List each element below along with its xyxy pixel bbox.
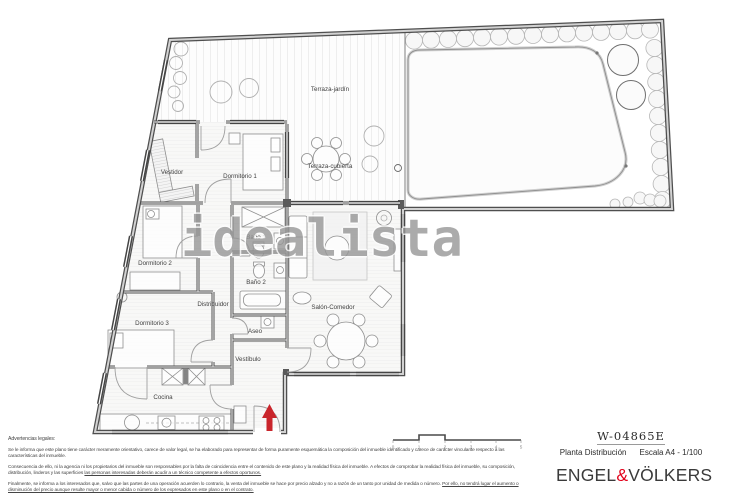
legal-paragraph-2: Consecuencia de ello, ni la agencia ni l… bbox=[8, 465, 524, 477]
label-dormitorio-1: Dormitorio 1 bbox=[223, 173, 257, 180]
hall-cabinet bbox=[234, 406, 246, 423]
label-salon-comedor: Salón-Comedor bbox=[311, 304, 354, 311]
label-vestidor: Vestidor bbox=[161, 169, 183, 176]
legal-heading: Advertencias legales: bbox=[8, 436, 524, 442]
label-aseo: Aseo bbox=[248, 328, 263, 335]
label-distribuidor: Distribuidor bbox=[197, 301, 228, 308]
logo-right: VÖLKERS bbox=[628, 465, 712, 485]
idealista-watermark: idealista bbox=[181, 209, 463, 269]
legal-p1-text: Se le informa que este plano tiene carác… bbox=[8, 448, 504, 459]
plan-reference: W-04865E bbox=[597, 429, 665, 445]
label-terraza-jardin: Terraza-jardín bbox=[311, 86, 350, 93]
label-bano-2: Baño 2 bbox=[246, 279, 266, 286]
logo-ampersand: & bbox=[616, 465, 628, 485]
plan-title: Planta Distribución bbox=[560, 448, 627, 457]
legal-p2-underlined: las personas interesadas deberán acudir … bbox=[84, 471, 261, 476]
legal-disclaimer: Advertencias legales: Se le informa que … bbox=[8, 436, 524, 499]
label-dormitorio-3: Dormitorio 3 bbox=[135, 320, 169, 327]
label-terraza-cubierta: Terraza-cubierta bbox=[308, 163, 353, 170]
label-dormitorio-2: Dormitorio 2 bbox=[138, 260, 172, 267]
label-vestibulo: Vestíbulo bbox=[235, 356, 261, 363]
engel-voelkers-logo: ENGEL&VÖLKERS bbox=[556, 465, 706, 486]
plan-subtitle: Planta DistribuciónEscala A4 - 1/100 bbox=[556, 448, 706, 457]
aseo-fixtures bbox=[261, 316, 274, 328]
logo-left: ENGEL bbox=[556, 465, 616, 485]
label-cocina: Cocina bbox=[153, 394, 173, 401]
garden-lawn-pool bbox=[408, 47, 628, 199]
title-block: W-04865E Planta DistribuciónEscala A4 - … bbox=[556, 427, 706, 457]
floorplan-page: Terraza-jardín Terraza-cubierta Dormitor… bbox=[0, 0, 750, 500]
legal-paragraph-3: Finalmente, se informa a los interesados… bbox=[8, 482, 524, 494]
legal-p3-text: Finalmente, se informa a los interesados… bbox=[8, 482, 442, 487]
legal-paragraph-1: Se le informa que este plano tiene carác… bbox=[8, 448, 524, 460]
plan-scale: Escala A4 - 1/100 bbox=[639, 448, 702, 457]
